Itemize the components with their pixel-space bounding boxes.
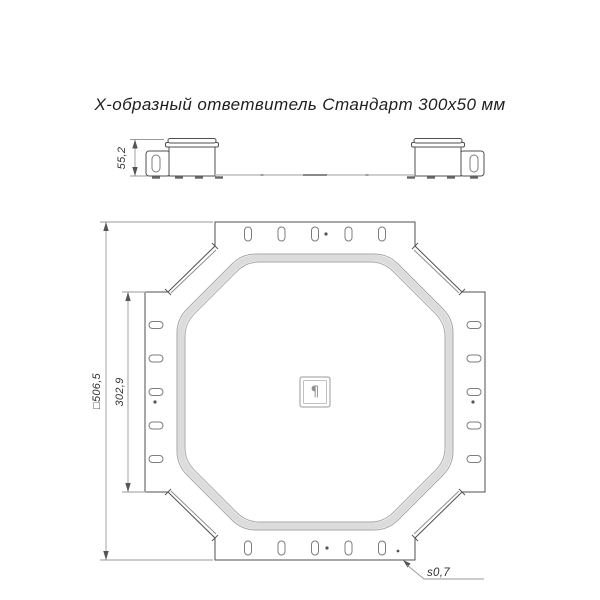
slot-hole: [245, 541, 252, 555]
foot-mark: [195, 176, 203, 178]
foot-mark: [447, 176, 455, 178]
arrowhead-down: [125, 483, 130, 492]
dimension-branch: 302,9: [114, 292, 146, 492]
slot-hole: [312, 541, 319, 555]
drawing-title: Х-образный ответвитель Стандарт 300х50 м…: [93, 95, 505, 114]
side-left-slot-hole: [152, 155, 160, 172]
slot-hole: [149, 355, 163, 362]
slot-hole: [149, 322, 163, 329]
technical-drawing-canvas: Х-образный ответвитель Стандарт 300х50 м…: [0, 0, 600, 600]
side-view: 55,2: [116, 139, 484, 179]
slot-hole: [467, 322, 481, 329]
slot-hole: [379, 227, 386, 241]
pilot-dot: [153, 400, 156, 403]
slot-hole: [345, 541, 352, 555]
foot-mark: [407, 176, 415, 178]
slot-hole: [149, 389, 163, 396]
brand-logo-icon: ¶: [311, 384, 320, 400]
dimension-branch-value: 302,9: [114, 377, 126, 406]
arrowhead-up: [103, 222, 108, 231]
foot-mark: [215, 176, 223, 178]
slot-hole: [245, 227, 252, 241]
foot-mark: [427, 176, 435, 178]
left-flange-slots: [149, 322, 163, 463]
brand-stamp: ¶: [300, 377, 330, 407]
slot-hole: [467, 422, 481, 429]
slot-hole: [467, 389, 481, 396]
slot-hole: [149, 456, 163, 463]
pilot-dot: [325, 546, 328, 549]
slot-hole: [312, 227, 319, 241]
right-flange-slots: [467, 322, 481, 463]
dimension-height-value: 55,2: [116, 147, 128, 170]
arrowhead-up: [132, 140, 137, 149]
slot-hole: [467, 456, 481, 463]
plan-view: ¶ □506,5 302,9: [91, 222, 485, 579]
side-feet-marks: [152, 176, 478, 178]
thickness-leader: s0,7: [403, 560, 484, 579]
arrowhead-down: [132, 167, 137, 176]
slot-hole: [345, 227, 352, 241]
slot-hole: [379, 541, 386, 555]
side-left-box: [169, 146, 215, 176]
side-right-slot-hole: [470, 155, 478, 172]
bottom-flange-slots: [245, 541, 386, 555]
foot-mark: [470, 176, 478, 178]
slot-hole: [278, 541, 285, 555]
foot-mark: [175, 176, 183, 178]
pilot-dot: [324, 232, 327, 235]
pilot-dot: [397, 550, 400, 553]
side-right-cap-top: [414, 139, 462, 144]
slot-hole: [149, 422, 163, 429]
arrowhead-up: [125, 292, 130, 301]
thickness-note: s0,7: [427, 567, 450, 579]
foot-mark: [152, 176, 160, 178]
side-right-box: [415, 146, 461, 176]
drawing-page: Х-образный ответвитель Стандарт 300х50 м…: [0, 0, 600, 600]
side-left-cap-top: [168, 139, 216, 144]
pilot-dot: [471, 400, 474, 403]
top-flange-slots: [245, 227, 386, 241]
dimension-overall-value: □506,5: [91, 372, 103, 409]
slot-hole: [467, 355, 481, 362]
arrowhead-down: [103, 551, 108, 560]
slot-hole: [278, 227, 285, 241]
